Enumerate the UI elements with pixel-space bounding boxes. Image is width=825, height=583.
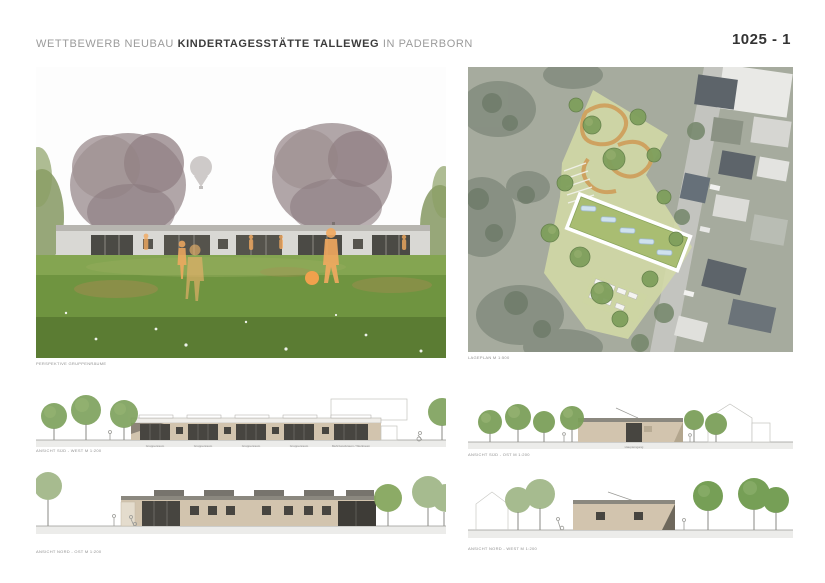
room-label: Mehrzweckraum / Werkraum — [332, 444, 371, 448]
elevation-nord-ost-caption: ANSICHT NORD - OST M 1:200 — [36, 549, 101, 554]
building-elevation — [121, 490, 376, 526]
site-plan-illustration — [468, 67, 793, 352]
elevation-nord-west — [468, 474, 793, 548]
sand-patch — [352, 277, 432, 293]
sand-patch — [74, 280, 158, 298]
panel-number: 1025 - 1 — [732, 31, 791, 48]
elevation-nord-west-drawing — [468, 474, 793, 548]
elevation-sued-west-drawing: Gruppenraum Gruppenraum Gruppenraum Grup… — [36, 390, 446, 452]
entrance-label: Haupteingang — [625, 445, 644, 449]
board-title-prefix: WETTBEWERB NEUBAU — [36, 38, 178, 50]
room-label: Gruppenraum — [290, 444, 309, 448]
ground — [36, 526, 446, 534]
room-label: Gruppenraum — [242, 444, 261, 448]
neighbour-house-outline — [476, 492, 508, 530]
kita-building — [56, 225, 430, 257]
elevation-sued-ost-drawing: Haupteingang — [468, 396, 793, 456]
perspective-illustration — [36, 67, 446, 358]
board-title-project: KINDERTAGESSTÄTTE TALLEWEG — [178, 38, 380, 50]
elevation-nord-ost-drawing — [36, 468, 446, 546]
building-elevation — [578, 408, 683, 442]
siteplan-caption: LAGEPLAN M 1:500 — [468, 355, 510, 360]
elevation-sued-west-caption: ANSICHT SÜD - WEST M 1:200 — [36, 448, 101, 453]
competition-board: WETTBEWERB NEUBAU KINDERTAGESSTÄTTE TALL… — [0, 0, 825, 583]
elevation-sued-west: Gruppenraum Gruppenraum Gruppenraum Grup… — [36, 390, 446, 452]
board-title-suffix: IN PADERBORN — [379, 38, 473, 50]
site-plan — [468, 67, 793, 352]
perspective-caption: PERSPEKTIVE GRUPPENRÄUME — [36, 361, 106, 366]
elevation-sued-ost-caption: ANSICHT SÜD - OST M 1:200 — [468, 452, 530, 457]
elevation-nord-west-caption: ANSICHT NORD - WEST M 1:200 — [468, 546, 537, 551]
perspective-rendering — [36, 67, 446, 358]
elevation-sued-ost: Haupteingang — [468, 396, 793, 456]
elevation-nord-ost — [36, 468, 446, 546]
lawn — [36, 255, 446, 358]
ground — [468, 530, 793, 538]
room-label: Gruppenraum — [146, 444, 165, 448]
building-elevation — [131, 415, 397, 440]
room-label: Gruppenraum — [194, 444, 213, 448]
building-elevation — [573, 492, 675, 530]
ball — [305, 271, 319, 285]
board-title: WETTBEWERB NEUBAU KINDERTAGESSTÄTTE TALL… — [36, 38, 473, 50]
